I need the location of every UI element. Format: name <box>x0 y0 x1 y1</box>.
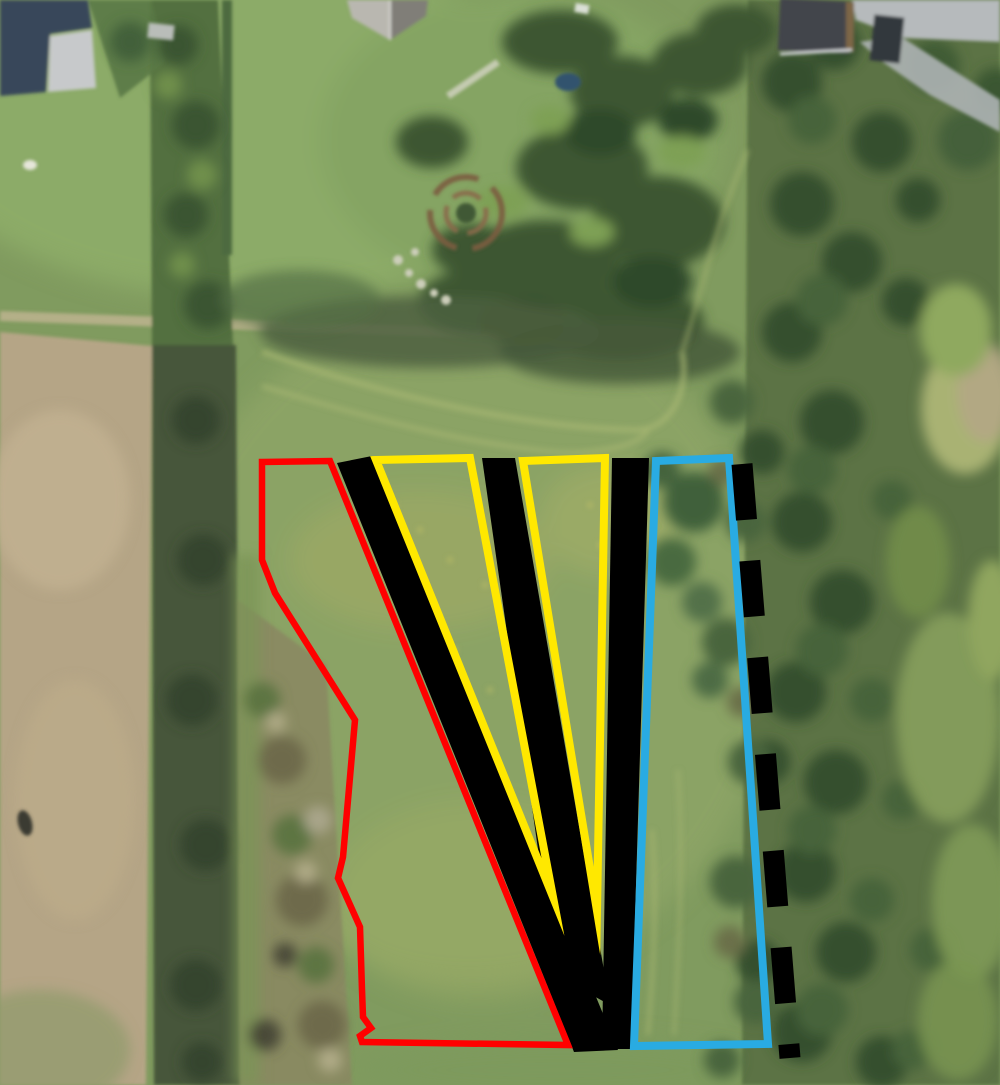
house-roof-light <box>48 30 96 92</box>
screenshot <box>0 0 1000 1085</box>
barn-edge <box>846 2 854 52</box>
shed-roof <box>147 23 174 41</box>
garden-pond <box>555 73 581 91</box>
barn-roof <box>778 0 853 54</box>
garden-hedge-line <box>222 0 232 255</box>
aerial-map <box>0 0 1000 1085</box>
parked-vehicle <box>870 15 905 64</box>
